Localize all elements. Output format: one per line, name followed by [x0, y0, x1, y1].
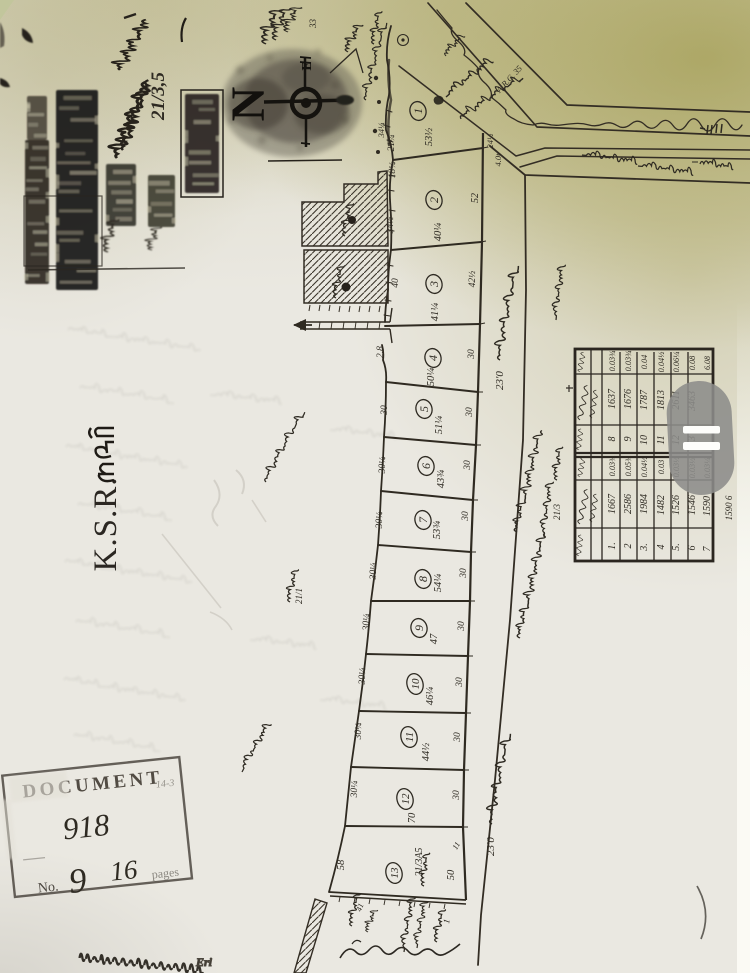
svg-text:14-3: 14-3	[155, 778, 174, 791]
svg-text:1813: 1813	[656, 390, 667, 410]
svg-text:10: 10	[410, 678, 422, 690]
svg-text:1590: 1590	[702, 496, 713, 516]
svg-text:11: 11	[656, 435, 667, 444]
svg-text:5.: 5.	[671, 543, 682, 551]
svg-text:6: 6	[687, 546, 698, 551]
svg-text:918: 918	[61, 807, 111, 847]
svg-text:42½: 42½	[467, 271, 478, 288]
svg-text:30¼: 30¼	[353, 723, 364, 741]
svg-text:53¾: 53¾	[432, 521, 443, 540]
svg-text:51¼: 51¼	[434, 416, 445, 435]
svg-text:0.06¼: 0.06¼	[672, 352, 681, 373]
svg-text:18¼: 18¼	[387, 162, 398, 179]
svg-text:10: 10	[639, 435, 650, 445]
svg-text:6: 6	[419, 463, 433, 469]
svg-text:41¼: 41¼	[430, 303, 441, 322]
svg-text:30¼: 30¼	[357, 668, 368, 686]
svg-text:3: 3	[427, 281, 441, 288]
svg-text:2586: 2586	[623, 494, 634, 514]
svg-text:0.04½: 0.04½	[657, 352, 666, 373]
svg-text:23'0: 23'0	[494, 371, 506, 390]
svg-text:12: 12	[400, 793, 412, 805]
svg-text:34½: 34½	[385, 217, 396, 235]
svg-text:44½: 44½	[421, 743, 432, 762]
svg-text:1676: 1676	[623, 389, 634, 409]
svg-text:8: 8	[416, 576, 430, 582]
svg-text:46¼: 46¼	[425, 687, 436, 706]
svg-text:30¼: 30¼	[374, 512, 385, 530]
svg-text:50: 50	[446, 869, 457, 880]
svg-text:30: 30	[455, 677, 465, 688]
svg-text:A.R.C. 35: A.R.C. 35	[493, 63, 524, 95]
svg-text:30: 30	[461, 511, 471, 522]
svg-text:0.03¾: 0.03¾	[608, 456, 617, 477]
svg-text:21/1: 21/1	[294, 588, 304, 604]
svg-text:23'0: 23'0	[485, 837, 497, 856]
svg-text:9: 9	[623, 437, 634, 442]
svg-text:30: 30	[465, 407, 475, 418]
svg-text:30¼: 30¼	[361, 614, 372, 632]
svg-text:54¼: 54¼	[433, 574, 444, 593]
svg-text:21/3A5: 21/3A5	[414, 848, 425, 877]
svg-text:No.: No.	[37, 879, 59, 896]
svg-text:2: 2	[427, 197, 441, 203]
svg-text:N: N	[222, 86, 275, 121]
svg-text:11: 11	[404, 732, 416, 742]
svg-text:30: 30	[452, 790, 462, 801]
svg-text:21/3,5: 21/3,5	[148, 71, 169, 121]
svg-text:1546: 1546	[687, 495, 698, 515]
svg-text:pages: pages	[151, 865, 180, 882]
svg-text:4.0t: 4.0t	[493, 153, 503, 167]
svg-text:1526: 1526	[671, 495, 682, 515]
svg-text:58: 58	[336, 859, 347, 870]
svg-text:0.03¾: 0.03¾	[624, 351, 633, 372]
svg-text:30: 30	[463, 460, 473, 471]
svg-text:2: 2	[623, 544, 634, 549]
svg-text:8: 8	[607, 437, 618, 442]
svg-text:1482: 1482	[656, 495, 667, 515]
svg-text:43¾: 43¾	[436, 470, 447, 489]
svg-text:1: 1	[411, 108, 425, 114]
svg-text:1637: 1637	[607, 388, 618, 409]
svg-text:0.03¾: 0.03¾	[608, 351, 617, 372]
svg-text:30: 30	[467, 349, 477, 360]
svg-text:4: 4	[426, 355, 440, 361]
svg-text:7: 7	[702, 546, 713, 552]
svg-text:21¼: 21¼	[386, 135, 397, 152]
svg-text:30: 30	[380, 405, 390, 416]
svg-text:1: 1	[441, 918, 452, 924]
svg-text:3.: 3.	[639, 543, 650, 552]
svg-text:5: 5	[417, 406, 431, 412]
svg-text:52: 52	[470, 193, 481, 203]
svg-text:0.08: 0.08	[688, 355, 697, 370]
svg-text:1667: 1667	[607, 493, 618, 514]
svg-text:30: 30	[459, 568, 469, 579]
svg-text:40¼: 40¼	[433, 223, 444, 242]
svg-text:K.S.R.: K.S.R.	[88, 477, 124, 572]
svg-text:30¼: 30¼	[377, 457, 388, 475]
svg-text:53½: 53½	[424, 128, 435, 147]
svg-text:4: 4	[656, 545, 667, 550]
svg-text:1590 6: 1590 6	[724, 495, 734, 520]
svg-text:6.08: 6.08	[703, 356, 712, 370]
svg-text:70: 70	[407, 812, 418, 823]
svg-text:13: 13	[389, 867, 401, 879]
svg-text:16: 16	[109, 854, 139, 887]
svg-text:41: 41	[354, 902, 365, 913]
svg-text:50¼: 50¼	[426, 368, 437, 387]
svg-text:0.05¾: 0.05¾	[624, 456, 633, 477]
svg-text:34¼: 34¼	[376, 122, 386, 139]
svg-text:9: 9	[67, 861, 88, 902]
svg-text:21/3: 21/3	[552, 504, 562, 521]
svg-text:1.: 1.	[607, 542, 618, 550]
svg-text:47: 47	[429, 633, 440, 644]
svg-text:30: 30	[457, 621, 467, 632]
svg-text:Eri: Eri	[195, 955, 213, 969]
svg-text:33: 33	[308, 19, 318, 30]
svg-text:24½: 24½	[485, 133, 495, 149]
svg-text:1787: 1787	[639, 389, 650, 410]
svg-text:2.8: 2.8	[376, 346, 386, 358]
svg-text:30: 30	[453, 732, 463, 743]
svg-text:1984: 1984	[639, 494, 650, 514]
svg-text:0.03: 0.03	[657, 460, 666, 475]
svg-text:11: 11	[451, 840, 462, 851]
svg-text:0.04½: 0.04½	[640, 457, 649, 478]
svg-text:30¼: 30¼	[368, 563, 379, 581]
svg-text:9: 9	[412, 625, 426, 631]
svg-text:0.04: 0.04	[640, 355, 649, 370]
svg-text:30¼: 30¼	[349, 781, 360, 799]
svg-text:7: 7	[416, 516, 430, 523]
svg-text:40: 40	[391, 278, 401, 288]
